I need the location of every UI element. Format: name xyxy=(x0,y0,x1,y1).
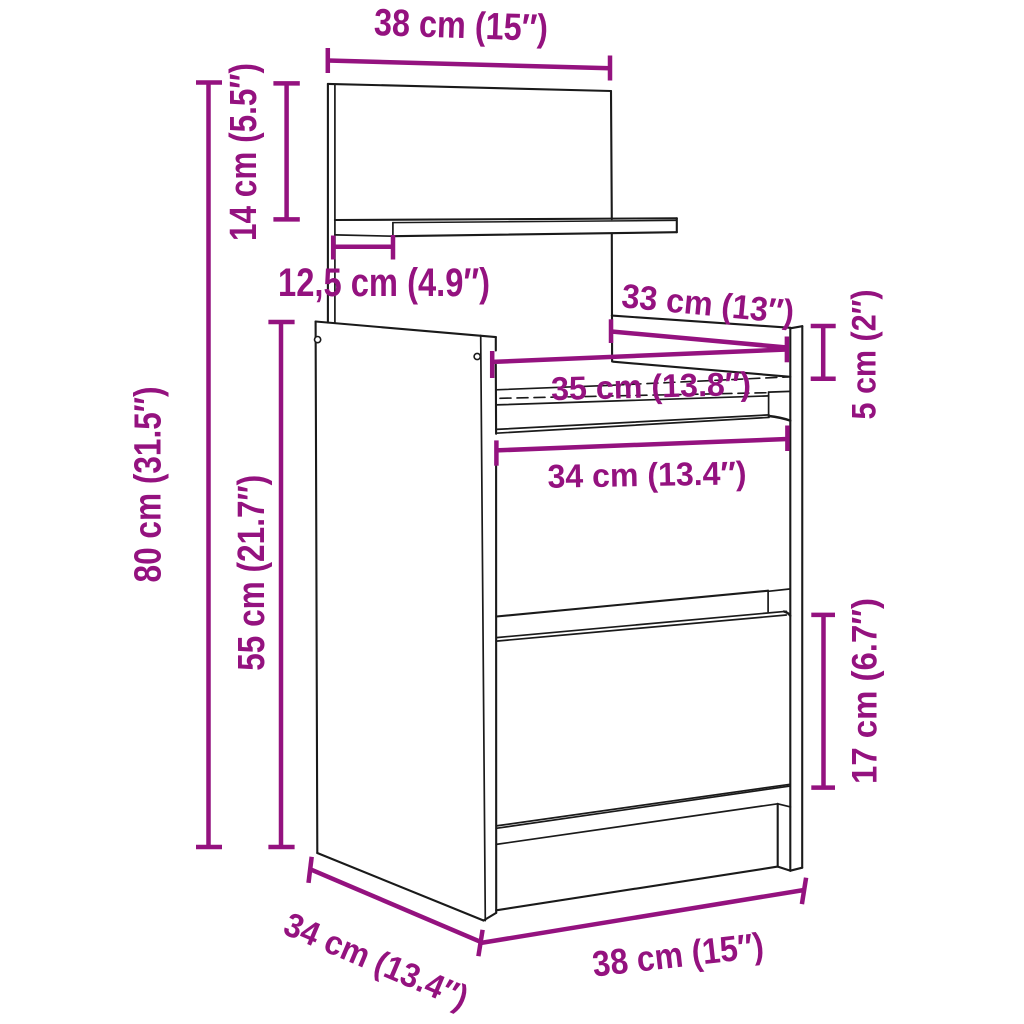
svg-text:34 cm (13.4″): 34 cm (13.4″) xyxy=(547,454,747,494)
svg-text:80 cm (31.5″): 80 cm (31.5″) xyxy=(128,387,170,583)
svg-text:55 cm (21.7″): 55 cm (21.7″) xyxy=(231,475,273,671)
svg-text:12,5 cm (4.9″): 12,5 cm (4.9″) xyxy=(278,261,490,305)
svg-text:5 cm (2″): 5 cm (2″) xyxy=(846,290,884,420)
svg-text:14 cm (5.5″): 14 cm (5.5″) xyxy=(223,63,265,241)
svg-text:35 cm (13.8″): 35 cm (13.8″) xyxy=(551,365,752,407)
svg-text:17 cm (6.7″): 17 cm (6.7″) xyxy=(846,598,885,784)
svg-text:38 cm (15″): 38 cm (15″) xyxy=(373,2,548,50)
